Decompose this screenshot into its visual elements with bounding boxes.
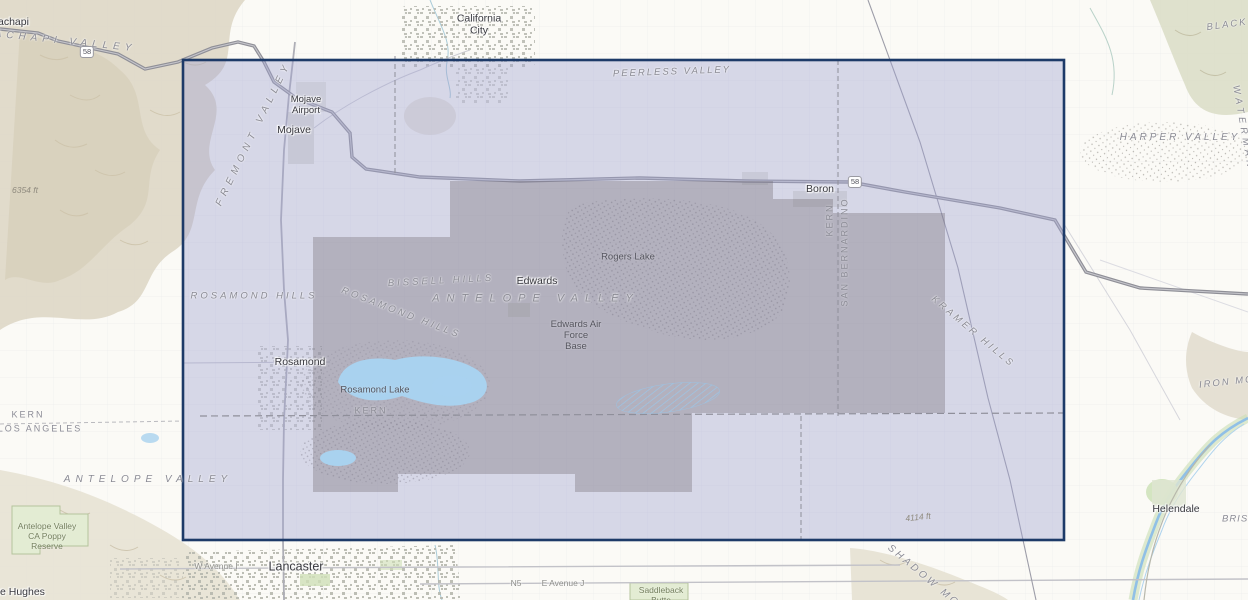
basemap-graphics	[0, 0, 1248, 600]
map-canvas[interactable]: TEHACHAPI VALLEYFREMONT VALLEYPEERLESS V…	[0, 0, 1248, 600]
